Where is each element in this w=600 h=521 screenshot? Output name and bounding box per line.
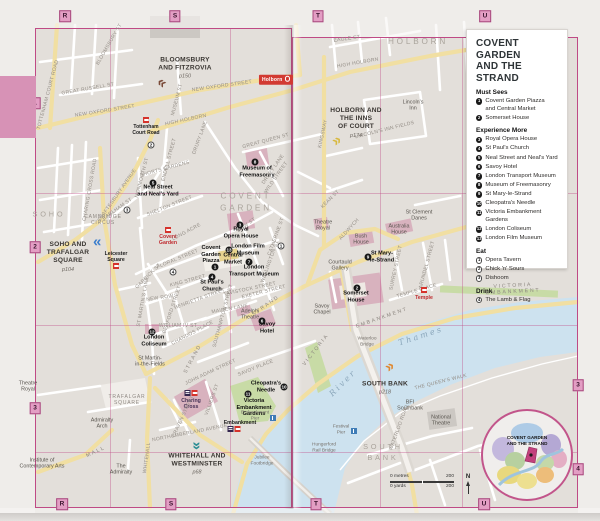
river-label: River [328,368,359,399]
legend-item-label: Neal Street and Neal's Yard [485,155,557,163]
map-label: EAGLE ST [333,35,360,45]
map-label: WATERLOO ROAD [389,405,411,452]
legend-item-number: 4 [476,146,482,152]
chapter-ref: HOLBORN AND THE INNS OF COURTp174 [330,107,381,139]
chapter-arrow-icon: » [190,442,205,449]
map-label: TEMPLE PLACE [396,283,437,300]
chapter-arrow-icon: » [382,359,396,375]
legend-panel: COVENT GARDEN AND THE STRAND Must Sees1C… [466,29,568,269]
sight-marker-3: 3 [237,222,244,229]
map-label: Neal Street and Neal's Yard [137,184,178,197]
map-label: TAVISTOCK STREET [223,282,276,299]
legend-item-number: 3 [476,137,482,143]
map-label: Australia House [389,224,410,237]
chapter-ref-page: p68 [168,470,225,476]
sight-marker-9: 9 [365,254,372,261]
sight-marker-7: 7 [246,259,253,266]
legend-section-heading: Experience More [476,127,561,134]
map-label: Festival Pier [333,424,350,435]
map-label: Leicester Square [105,251,128,263]
legend-item: 4St Paul's Church [476,145,561,153]
chapter-ref-title: WHITEHALL AND WESTMINSTER [168,452,225,468]
map-label: ST MARTIN'S LANE [137,277,152,328]
grid-marker-T: T [313,10,324,22]
map-label: Covent Garden [159,234,177,246]
sight-marker-12: 12 [149,329,156,336]
legend-item-label: London Film Museum [485,235,542,243]
map-label: BFI Southbank [397,400,423,413]
map-label: NEW ROW [146,294,174,304]
legend-item: 10Cleopatra's Needle [476,200,561,208]
grid-marker-R: R [59,10,71,22]
sight-marker-1: 1 [212,264,219,271]
legend-section-heading: Must Sees [476,89,561,96]
embankment-pier-icon [270,415,276,421]
chapter-ref-page: p104 [47,267,89,273]
map-label: STRAND [183,343,203,374]
legend-item-number: 1 [476,257,482,263]
scale-metres-value: 200 [446,474,454,479]
legend-item: 12London Coliseum [476,226,561,234]
map-label: NEW OXFORD STREET [75,104,136,119]
chapter-ref: SOHO AND TRAFALGAR SQUAREp104 [47,241,89,273]
map-label: JOHN ADAM STREET [185,359,237,388]
map-label: GREAT QUEEN ST [242,133,290,151]
area-label-south-bank: SOUTH BANK [363,441,403,463]
chapter-arrow-icon: » [155,76,169,92]
map-label: St Martin- in-the-Fields [135,356,165,369]
grid-marker-3: 3 [573,379,584,391]
map-label: MALL [85,445,106,459]
map-label: Courtauld Gallery [328,260,351,273]
map-label: SHAFTESBURY AVENUE [97,168,138,223]
legend-item-label: Victoria Embankment Gardens [485,209,561,224]
scale-metres-label: 0 metres [390,474,409,479]
sight-marker-11: 11 [245,391,252,398]
legend-item-number: 13 [476,236,482,242]
map-label: Institute of Contemporary Arts [20,458,65,471]
pier-icon [270,415,276,421]
map-label: WHITEHALL [143,442,153,474]
map-label: CRAVEN STREET [172,395,197,439]
legend-sections: Must Sees1Covent Garden Piazza and Centr… [476,89,561,304]
map-label: STRAND [251,294,281,317]
legend-item-label: St Mary-le-Strand [485,191,531,199]
map-label: HIGH HOLBORN [337,57,380,70]
charing-cross-station [185,390,198,396]
legend-item-label: Royal Opera House [485,136,537,144]
map-label: St Clement Danes [406,210,433,223]
map-label: THE QUEEN'S WALK [414,374,467,393]
map-label: BLOOMSBURY ST [96,23,124,66]
map-label: SOUTHAMPTON STREET [213,284,236,349]
eat-drink-marker-4: 4 [170,269,177,276]
locator-inset [479,407,575,503]
legend-item: 13London Film Museum [476,235,561,243]
sight-marker-8: 8 [252,159,259,166]
north-label: N [462,474,474,480]
map-label: SHELTON STREET [146,195,193,219]
chapter-ref-title: SOHO AND TRAFALGAR SQUARE [47,241,89,266]
sight-marker-4: 4 [209,274,216,281]
legend-item-label: Museum of Freemasonry [485,182,550,190]
legend-item-number: 11 [476,210,482,216]
map-label: CHANDOS PLACE [171,320,215,347]
tube-icon [192,390,198,396]
map-label: Somerset House [343,290,369,303]
legend-item-label: London Coliseum [485,226,531,234]
legend-item: 3Dishoom [476,275,561,283]
map-label: CHARING CROSS ROAD [83,158,100,222]
map-label: EMBANKMENT [355,306,409,330]
legend-item-number: 8 [476,182,482,188]
map-label: Waterloo Bridge [357,336,376,347]
legend-item-number: 3 [476,275,482,281]
area-label-covent-garden: COVENT GARDEN [220,191,272,216]
legend-item-label: Covent Garden Piazza and Central Market [485,98,544,113]
tube-icon [143,117,149,123]
map-label: St Mary- le-Strand [370,250,394,263]
legend-item-label: Savoy Hotel [485,164,517,172]
locator-inset-label: COVENT GARDEN AND THE STRAND [507,435,548,447]
scale-bar: 0 metres 200 0 yards 200 [390,474,466,489]
tottenham-court-road-station [143,117,149,123]
legend-item: 2Somerset House [476,115,561,123]
area-label-soho: SOHO [33,208,66,219]
map-label: KINGSWAY [318,119,330,148]
map-label: MONMOUTH ST [135,157,151,198]
legend-item-label: St Paul's Church [485,145,529,153]
legend-item-number: 7 [476,173,482,179]
map-label: London Coliseum [141,334,166,347]
map-label: London Film Museum [231,243,265,256]
map-label: ALDWYCH [339,218,362,242]
legend-item: 6Savoy Hotel [476,164,561,172]
pier-icon [351,428,357,434]
legend-title: COVENT GARDEN AND THE STRAND [476,38,561,84]
legend-item: 4The Lamb & Flag [476,297,561,305]
legend-item-label: London Transport Museum [485,173,555,181]
map-label: HIGH HOLBORN [165,114,208,129]
grid-marker-U: U [479,10,491,22]
map-label: Bush House [353,234,369,247]
grid-marker-R: R [56,498,68,510]
chapter-ref: WHITEHALL AND WESTMINSTERp68 [168,452,225,475]
map-label: KING STREET [170,274,207,289]
river-label: Thames [397,324,444,347]
chapter-ref-page: p218 [362,390,408,396]
map-label: Savoy Chapel [313,304,330,317]
map-label: Temple [415,295,433,301]
locator-inset-art [479,407,575,503]
legend-item: 2Chick 'n' Sours [476,266,561,274]
legend-item: 7London Transport Museum [476,173,561,181]
legend-item: 3Royal Opera House [476,136,561,144]
map-label: Embankment Pier [241,410,269,421]
rail-icon [185,390,191,396]
map-label: Adelphi Theatre [241,309,260,322]
festival-pier-icon [351,428,357,434]
legend-item-number: 2 [476,115,482,121]
map-label: KEAN ST [321,190,342,211]
page-edge-tab [0,76,36,138]
map-label: EXETER STREET [241,285,286,302]
map-label: Central Market [223,252,242,265]
chapter-ref-title: HOLBORN AND THE INNS OF COURT [330,107,381,132]
sight-marker-10: 10 [281,384,288,391]
map-label: National Theatre [431,415,451,428]
legend-item-number: 9 [476,191,482,197]
legend-item: 1Covent Garden Piazza and Central Market [476,98,561,113]
sight-marker-13: 13 [226,247,233,254]
map-label: NEW OXFORD STREET [192,80,253,94]
scale-yards-value: 200 [446,484,454,489]
eat-drink-marker-3: 3 [124,207,131,214]
map-label: WILD STREET [264,161,290,195]
grid-marker-S: S [169,10,180,22]
legend-item-number: 5 [476,155,482,161]
grid-marker-2: 2 [30,241,41,253]
chapter-ref: SOUTH BANKp218 [362,380,408,395]
map-label: Museum of Freemasonry [239,165,274,178]
map-label: London Transport Museum [229,264,279,277]
map-label: DRURY LANE [262,154,287,186]
area-label-holborn: HOLBORN [388,36,448,48]
map-label: SAVOY PLACE [237,359,274,379]
legend-item: 11Victoria Embankment Gardens [476,209,561,224]
map-label: St Paul's Church [200,279,223,292]
map-label: DRURY LANE [192,121,210,156]
map-label: Covent Garden Piazza [201,245,221,265]
map-label: BEDFORD STREET [163,285,184,334]
map-label: LONG ACRE [172,223,203,243]
grid-marker-3: 3 [30,402,41,414]
eat-drink-marker-1: 1 [278,243,285,250]
map-label: CAMBRIDGE CIRCUS [84,215,121,227]
map-label: VILLIERS ST [205,383,222,416]
grid-marker-S: S [165,498,176,510]
map-label: Charing Cross [181,398,201,410]
map-label: Theatre Royal [314,220,333,233]
map-label: HENRIETTA STREET [174,288,226,312]
map-label: The Admiralty [110,464,132,477]
legend-item: 1Opera Tavern [476,257,561,265]
legend-item-number: 1 [476,98,482,104]
legend-item: 5Neal Street and Neal's Yard [476,155,561,163]
tube-icon [421,287,427,293]
map-label: FLORAL STREET [156,249,199,271]
legend-item-label: Somerset House [485,115,529,123]
chapter-ref-title: BLOOMSBURY AND FITZROVIA [158,56,212,72]
map-label: TOTTENHAM COURT ROAD [37,60,61,131]
legend-item-label: Chick 'n' Sours [485,266,524,274]
chapter-arrow-icon: » [95,236,102,251]
legend-item: 9St Mary-le-Strand [476,191,561,199]
legend-section-heading: Eat [476,248,561,255]
legend-item-number: 10 [476,201,482,207]
tube-icon [165,227,171,233]
legend-item-number: 6 [476,164,482,170]
map-label: MUSEUM ST [171,83,185,116]
legend-section-heading: Drink [476,288,561,295]
legend-item-label: Dishoom [485,275,508,283]
sight-marker-2: 2 [354,285,361,292]
page-bottom-edge [0,513,600,521]
leicester-square-station [113,263,119,269]
temple-station [421,287,427,293]
legend-item-number: 2 [476,266,482,272]
map-label: Royal Opera House [224,226,259,239]
map-label: Lincoln's Inn [403,100,424,113]
map-label: Victoria Embankment Gardens [236,398,271,418]
map-label: ARUNDEL STREET [419,241,437,290]
map-label: Tottenham Court Road [132,125,159,137]
map-label: GARRICK ST [135,263,163,291]
map-label: GREAT RUSSELL ST [61,82,115,97]
map-label: MAIDEN LANE [211,304,249,316]
map-label: TRAFALGAR SQUARE [109,395,146,407]
legend-item-label: Opera Tavern [485,257,521,265]
grid-marker-T: T [311,498,322,510]
north-indicator: N [462,474,474,494]
map-label: Cleopatra's Needle [251,380,281,393]
legend-item-label: The Lamb & Flag [485,297,530,305]
chapter-ref-title: SOUTH BANK [362,380,408,388]
map-label: Theatre Royal [19,381,38,394]
map-label: CATHERINE ST [267,217,286,257]
legend-item-label: Cleopatra's Needle [485,200,535,208]
map-label: WILLIAM IV ST [159,324,197,330]
scale-yards-label: 0 yards [390,484,406,489]
scale-bar-line [390,481,454,483]
legend-item-number: 12 [476,226,482,232]
holborn-station: Holborn [259,75,293,85]
sight-marker-6: 6 [259,318,266,325]
legend-item-number: 4 [476,297,482,303]
map-label: SHORTS GARDENS [140,161,191,180]
map-label: ENDELL STREET [161,138,178,182]
tube-icon [113,263,119,269]
map-label: Admiralty Arch [91,418,113,431]
map-label: Jubilee Footbridge [251,455,274,466]
map-label: SURREY STREET [389,245,404,291]
legend-item: 8Museum of Freemasonry [476,182,561,190]
tube-icon [235,426,241,432]
map-label: Hungerford Rail Bridge [312,442,336,453]
embankment-station [228,426,241,432]
covent-garden-station [165,227,171,233]
eat-drink-marker-2: 2 [148,142,155,149]
map-spread-page: SOHOCOVENT GARDENHOLBORNSOUTH BANKRiverT… [0,0,600,521]
sight-marker-5: 5 [150,180,157,187]
rail-icon [228,426,234,432]
map-label: VICTORIA [302,333,331,367]
